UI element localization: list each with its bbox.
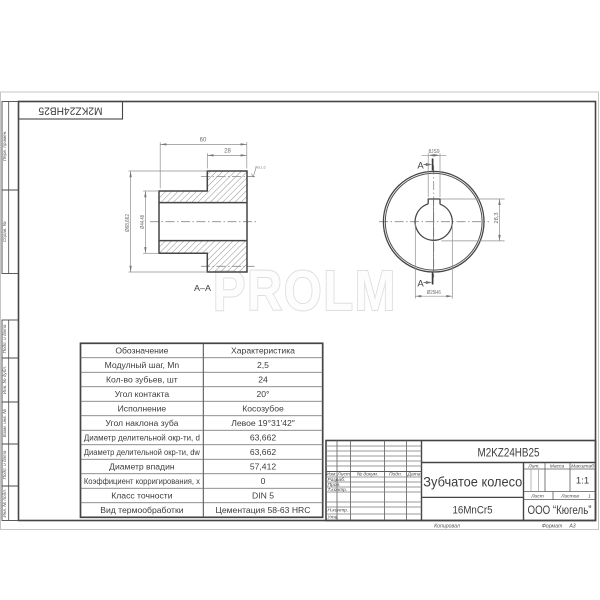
svg-text:Косозубое: Косозубое	[242, 404, 284, 414]
svg-text:Формат: Формат	[542, 524, 563, 530]
svg-text:№ докум.: № докум.	[357, 472, 379, 478]
svg-text:Лист: Лист	[336, 472, 350, 478]
svg-text:Подп.: Подп.	[389, 472, 402, 478]
svg-text:Изм.: Изм.	[326, 472, 336, 478]
svg-text:2,5: 2,5	[257, 360, 269, 370]
svg-text:M2KZ24HB25: M2KZ24HB25	[478, 448, 540, 460]
svg-text:A–A: A–A	[194, 283, 211, 293]
svg-text:Лист: Лист	[530, 494, 544, 500]
svg-text:Инв. № дубл.: Инв. № дубл.	[2, 366, 7, 394]
svg-text:24: 24	[258, 375, 268, 385]
svg-text:1:1: 1:1	[576, 476, 589, 487]
svg-text:Взам. инв. №: Взам. инв. №	[2, 409, 7, 437]
svg-text:A: A	[417, 279, 424, 290]
svg-text:M2KZ24HB25: M2KZ24HB25	[39, 105, 103, 117]
svg-text:A: A	[417, 161, 424, 172]
svg-text:28: 28	[224, 149, 231, 155]
svg-text:16MnCr5: 16MnCr5	[453, 505, 493, 517]
svg-text:57,412: 57,412	[250, 462, 277, 472]
svg-text:Класс точности: Класс точности	[111, 491, 172, 501]
svg-text:Кол-во зубьев, шт: Кол-во зубьев, шт	[106, 375, 178, 385]
svg-text:1: 1	[588, 494, 591, 500]
svg-text:Перв. примен.: Перв. примен.	[2, 130, 7, 161]
svg-text:Т.контр.: Т.контр.	[328, 487, 348, 493]
svg-text:A3: A3	[568, 524, 575, 530]
svg-text:28,3: 28,3	[494, 213, 500, 224]
svg-text:Коэффициент корригирования, x: Коэффициент корригирования, x	[84, 476, 201, 486]
svg-text:Цементация 58-63 HRC: Цементация 58-63 HRC	[216, 505, 311, 515]
svg-text:20°: 20°	[257, 389, 270, 399]
svg-text:60: 60	[200, 138, 207, 144]
svg-text:Дата: Дата	[407, 472, 421, 478]
svg-text:Исполнение: Исполнение	[118, 404, 167, 414]
svg-text:ООО “Кюгель”: ООО “Кюгель”	[528, 505, 592, 517]
svg-text:Масштаб: Масштаб	[571, 464, 594, 470]
svg-text:Масса: Масса	[550, 464, 565, 470]
svg-text:Лит.: Лит.	[527, 464, 539, 470]
svg-text:DIN 5: DIN 5	[252, 491, 274, 501]
svg-text:Копировал: Копировал	[434, 524, 460, 530]
svg-text:Модулный шаг, Mn: Модулный шаг, Mn	[105, 360, 180, 370]
svg-text:Обозначение: Обозначение	[115, 346, 168, 356]
svg-text:Ø68,662: Ø68,662	[125, 214, 131, 232]
svg-text:Вид термообработки: Вид термообработки	[100, 505, 183, 515]
svg-text:Утв.: Утв.	[328, 515, 339, 521]
svg-text:0: 0	[261, 476, 266, 486]
svg-text:63,662: 63,662	[250, 433, 277, 443]
svg-text:Зубчатое колесо: Зубчатое колесо	[423, 474, 522, 490]
svg-text:Диаметр впадин: Диаметр впадин	[109, 462, 175, 472]
svg-text:Подп. и дата: Подп. и дата	[2, 450, 7, 479]
svg-text:Ø44,48: Ø44,48	[140, 215, 146, 229]
svg-text:Листов: Листов	[560, 494, 579, 500]
svg-text:Диаметр делительной окр-ти, dw: Диаметр делительной окр-ти, dw	[84, 447, 201, 457]
svg-text:Ra1,6: Ra1,6	[255, 166, 265, 170]
svg-text:Справ. №: Справ. №	[2, 221, 7, 242]
svg-text:Подп. и дата: Подп. и дата	[2, 324, 7, 353]
svg-text:Диаметр делительной окр-ти, d: Диаметр делительной окр-ти, d	[84, 433, 200, 443]
svg-text:8JS9: 8JS9	[429, 149, 440, 155]
svg-text:Левое 19°31′42″: Левое 19°31′42″	[231, 418, 295, 428]
svg-text:63,662: 63,662	[250, 447, 277, 457]
svg-text:Ø25H6: Ø25H6	[427, 290, 441, 296]
svg-text:Угол наклона зуба: Угол наклона зуба	[105, 418, 178, 428]
svg-text:Угол контакта: Угол контакта	[115, 389, 170, 399]
svg-text:Инв. № подл.: Инв. № подл.	[2, 489, 7, 518]
svg-text:Н.контр.: Н.контр.	[328, 508, 349, 514]
svg-text:Характеристика: Характеристика	[231, 346, 295, 356]
